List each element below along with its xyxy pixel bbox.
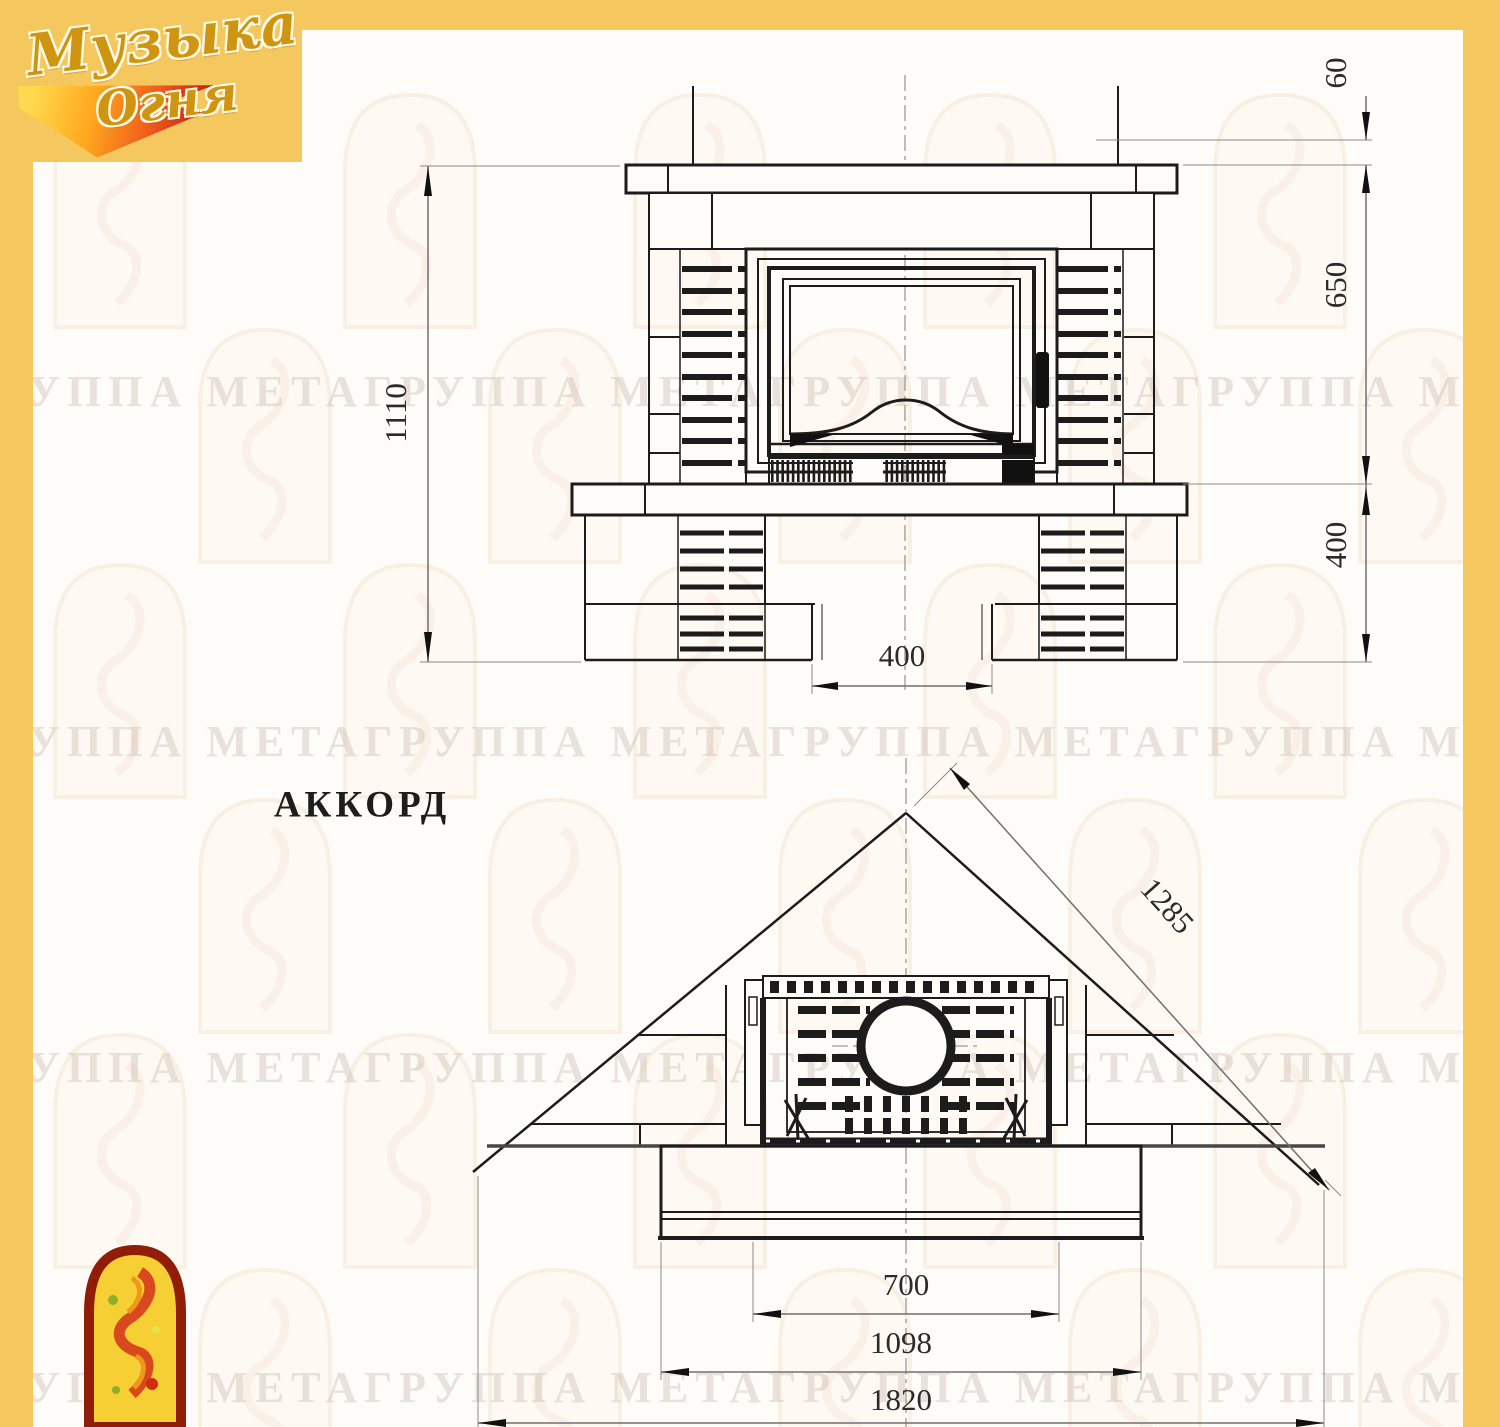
frame-band-left <box>0 0 33 1427</box>
dim-top-offset: 60 <box>1318 58 1354 89</box>
door-handle <box>1036 352 1049 408</box>
dim-niche-width: 400 <box>879 638 926 674</box>
dim-total-width: 1820 <box>870 1382 932 1418</box>
front-view-drawing <box>572 75 1187 690</box>
dim-total-height: 1110 <box>378 383 414 443</box>
dim-firebox-width: 700 <box>883 1267 930 1303</box>
drawing-page: ГРУППА МЕТАГРУППА МЕТАГРУППА МЕТАГРУППА … <box>0 0 1500 1427</box>
dim-hearth-width: 1098 <box>870 1325 932 1361</box>
frame-band-right <box>1463 0 1500 1427</box>
brand-logo: Музыка Огня <box>0 0 302 162</box>
fireplace-technical-drawing <box>0 0 1500 1427</box>
dim-firebox-zone: 650 <box>1318 262 1354 309</box>
arch-stamp-logo <box>80 1238 190 1427</box>
model-name-label: АККОРД <box>274 784 450 827</box>
dim-base-zone: 400 <box>1318 522 1354 569</box>
